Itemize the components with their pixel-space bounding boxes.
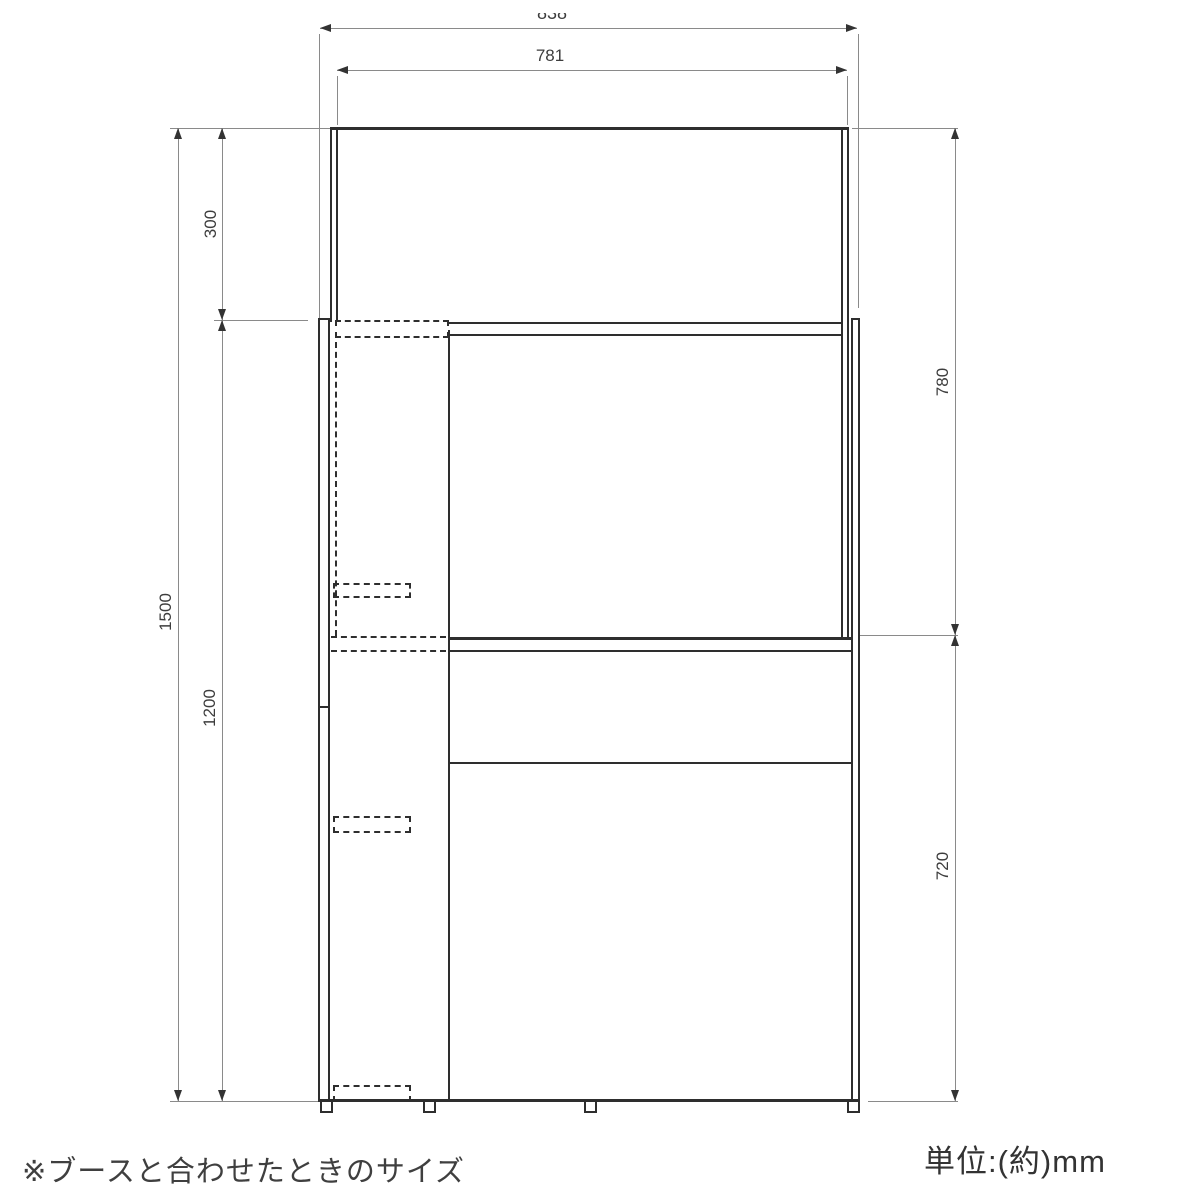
arrow-1200-bottom xyxy=(218,1090,226,1101)
inner-width-label: 781 xyxy=(522,47,578,65)
arrow-720-bottom xyxy=(951,1090,959,1101)
ext-bottom-right xyxy=(868,1101,958,1102)
arrow-inner-width-right xyxy=(836,66,847,74)
hidden-top-connector-box xyxy=(335,320,449,338)
outer-width-value: 838 xyxy=(524,13,580,23)
dimension-diagram: 838 781 300 1500 1200 780 720 ※ブースと合わせたと… xyxy=(0,0,1200,1200)
dim-line-left-inner xyxy=(222,128,223,1101)
ext-desk-right xyxy=(860,635,958,636)
ext-inner-width-left xyxy=(337,76,338,125)
booth-right-panel-inner xyxy=(851,318,853,1101)
dim-line-right xyxy=(955,128,956,1101)
desk-top-under-edge xyxy=(448,650,851,652)
hidden-bracket-upper xyxy=(333,583,411,598)
arrow-1200-top xyxy=(218,320,226,331)
top-section-height-label: 300 xyxy=(202,192,220,256)
ext-outer-width-left xyxy=(319,34,320,318)
ext-bottom-left xyxy=(170,1101,318,1102)
total-height-label: 1500 xyxy=(157,580,175,644)
desk-left-side-panel xyxy=(448,330,450,1100)
hidden-bracket-bottom xyxy=(333,1085,411,1102)
booth-panel-height-label: 1200 xyxy=(201,676,219,740)
foot-left xyxy=(320,1100,333,1113)
dim-line-outer-width xyxy=(320,28,857,29)
back-panel-right-inner xyxy=(841,127,843,637)
ext-top-right xyxy=(852,128,958,129)
booth-left-panel-inner xyxy=(328,318,330,1101)
booth-size-note: ※ブースと合わせたときのサイズ xyxy=(22,1148,465,1190)
ext-outer-width-right xyxy=(858,34,859,308)
arrow-780-bottom xyxy=(951,624,959,635)
ext-top-left xyxy=(170,128,330,129)
desk-height-label: 720 xyxy=(934,834,952,898)
arrow-outer-width-right xyxy=(846,24,857,32)
booth-left-panel-outer xyxy=(318,318,320,1101)
outer-width-label-clipped: 838 xyxy=(524,13,580,26)
foot-right xyxy=(847,1100,860,1113)
back-panel-left-inner xyxy=(336,127,338,322)
desk-modesty-panel-edge xyxy=(448,762,851,764)
booth-right-panel-outer xyxy=(858,318,860,1101)
top-rail-upper-edge xyxy=(448,322,841,324)
arrow-300-top xyxy=(218,128,226,139)
hidden-bracket-middle xyxy=(333,816,411,833)
foot-center xyxy=(584,1100,597,1113)
ext-inner-width-right xyxy=(847,76,848,125)
top-rail-lower-edge xyxy=(448,334,841,336)
arrow-1500-bottom xyxy=(174,1090,182,1101)
desk-top-surface xyxy=(448,637,851,640)
dim-line-total-height xyxy=(178,128,179,1101)
arrow-1500-top xyxy=(174,128,182,139)
hidden-desk-top-line xyxy=(331,636,446,638)
arrow-720-top xyxy=(951,635,959,646)
foot-mid-left xyxy=(423,1100,436,1113)
back-panel-top-edge xyxy=(331,127,848,130)
back-panel-left-outer xyxy=(330,127,332,322)
dim-line-inner-width xyxy=(337,70,847,71)
arrow-outer-width-left xyxy=(320,24,331,32)
arrow-300-bottom xyxy=(218,309,226,320)
booth-left-panel-joint xyxy=(318,706,330,708)
back-panel-right-outer xyxy=(847,127,849,637)
upper-opening-height-label: 780 xyxy=(934,350,952,414)
unit-label: 単位:(約)mm xyxy=(924,1136,1106,1181)
ext-mid-left xyxy=(214,320,308,321)
arrow-780-top xyxy=(951,128,959,139)
hidden-desk-under-line xyxy=(331,650,446,652)
arrow-inner-width-left xyxy=(337,66,348,74)
